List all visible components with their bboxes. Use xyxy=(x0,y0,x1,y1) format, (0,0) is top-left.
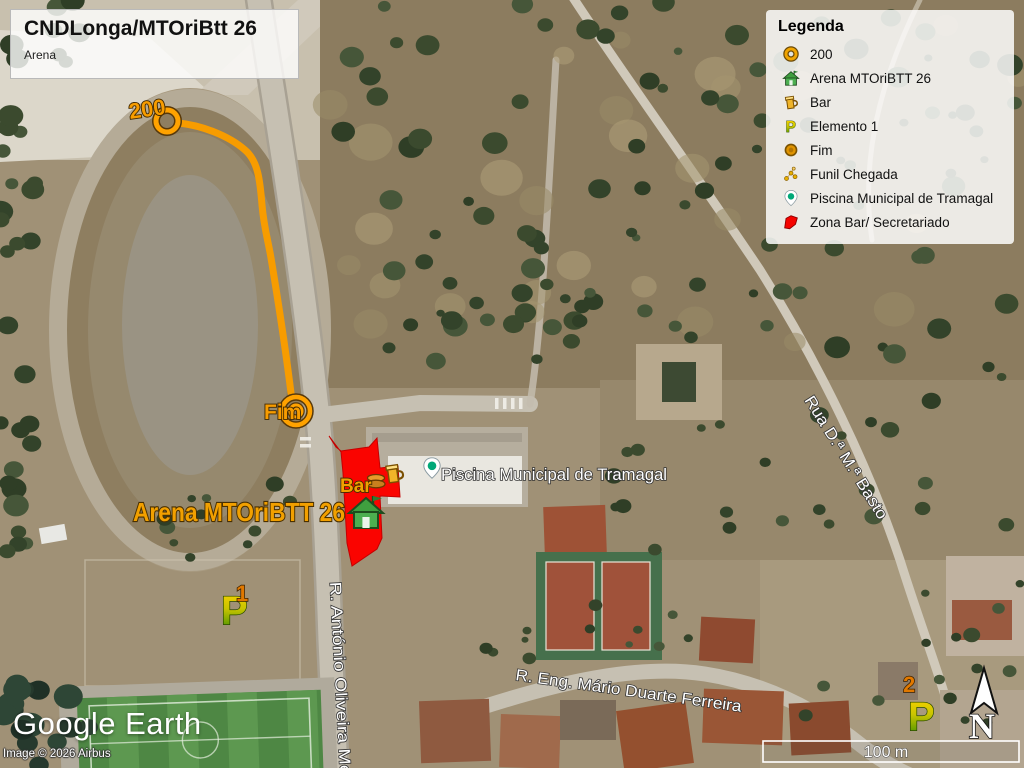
marker-1-flag[interactable]: P 1 xyxy=(221,581,248,633)
legend-item: Piscina Municipal de Tramagal xyxy=(778,186,1004,210)
legend-list: 200 Arena MTOriBTT 26 Bar Elemento 1 Fim… xyxy=(778,42,1004,234)
google-earth-viewport: P xyxy=(0,0,1024,768)
marker-2-number: 2 xyxy=(903,672,915,697)
scale-bar: 100 m xyxy=(763,741,1019,762)
map-subtitle: Arena xyxy=(24,48,285,62)
legend-item-label: Fim xyxy=(810,143,833,158)
pool-pin-icon xyxy=(782,189,800,207)
imagery-attribution: Image © 2026 Airbus xyxy=(3,748,111,760)
p-flag-icon: P xyxy=(908,695,935,739)
red-zone-icon xyxy=(782,213,800,231)
legend-item-label: Zona Bar/ Secretariado xyxy=(810,215,950,230)
north-label: N xyxy=(969,706,995,746)
finish-circle-icon xyxy=(782,141,800,159)
legend-item: Arena MTOriBTT 26 xyxy=(778,66,1004,90)
label-arena: Arena MTOriBTT 26 xyxy=(133,497,345,527)
control-circle-icon xyxy=(782,45,800,63)
funnel-dots-icon xyxy=(782,165,800,183)
google-earth-logo: Google Earth xyxy=(13,706,202,742)
element-flag-icon xyxy=(782,117,800,135)
legend-item: 200 xyxy=(778,42,1004,66)
label-piscina: Piscina Municipal de Tramagal xyxy=(441,466,667,484)
title-box: CNDLonga/MTOriBtt 26 Arena xyxy=(10,9,299,79)
legend-item: Bar xyxy=(778,90,1004,114)
legend-item-label: Bar xyxy=(810,95,831,110)
scale-label: 100 m xyxy=(864,744,908,761)
legend-item-label: Arena MTOriBTT 26 xyxy=(810,71,931,86)
label-fim: Fim xyxy=(264,401,301,424)
legend-item-label: Elemento 1 xyxy=(810,119,878,134)
legend-item: Funil Chegada xyxy=(778,162,1004,186)
legend-item-label: 200 xyxy=(810,47,833,62)
label-200: 200 xyxy=(127,94,167,124)
legend-item: Elemento 1 xyxy=(778,114,1004,138)
label-bar: Bar xyxy=(340,476,372,497)
bar-mug-icon xyxy=(782,93,800,111)
marker-1-number: 1 xyxy=(236,581,248,606)
arena-house-icon xyxy=(782,69,800,87)
legend-item: Fim xyxy=(778,138,1004,162)
fim-placemark[interactable]: Fim xyxy=(264,397,310,425)
legend-item-label: Funil Chegada xyxy=(810,167,898,182)
map-title: CNDLonga/MTOriBtt 26 xyxy=(24,17,285,41)
legend-item: Zona Bar/ Secretariado xyxy=(778,210,1004,234)
legend-title: Legenda xyxy=(778,18,1004,36)
legend-panel: Legenda 200 Arena MTOriBTT 26 Bar Elemen… xyxy=(766,10,1014,244)
legend-item-label: Piscina Municipal de Tramagal xyxy=(810,191,993,206)
courtyard-building xyxy=(636,344,722,420)
